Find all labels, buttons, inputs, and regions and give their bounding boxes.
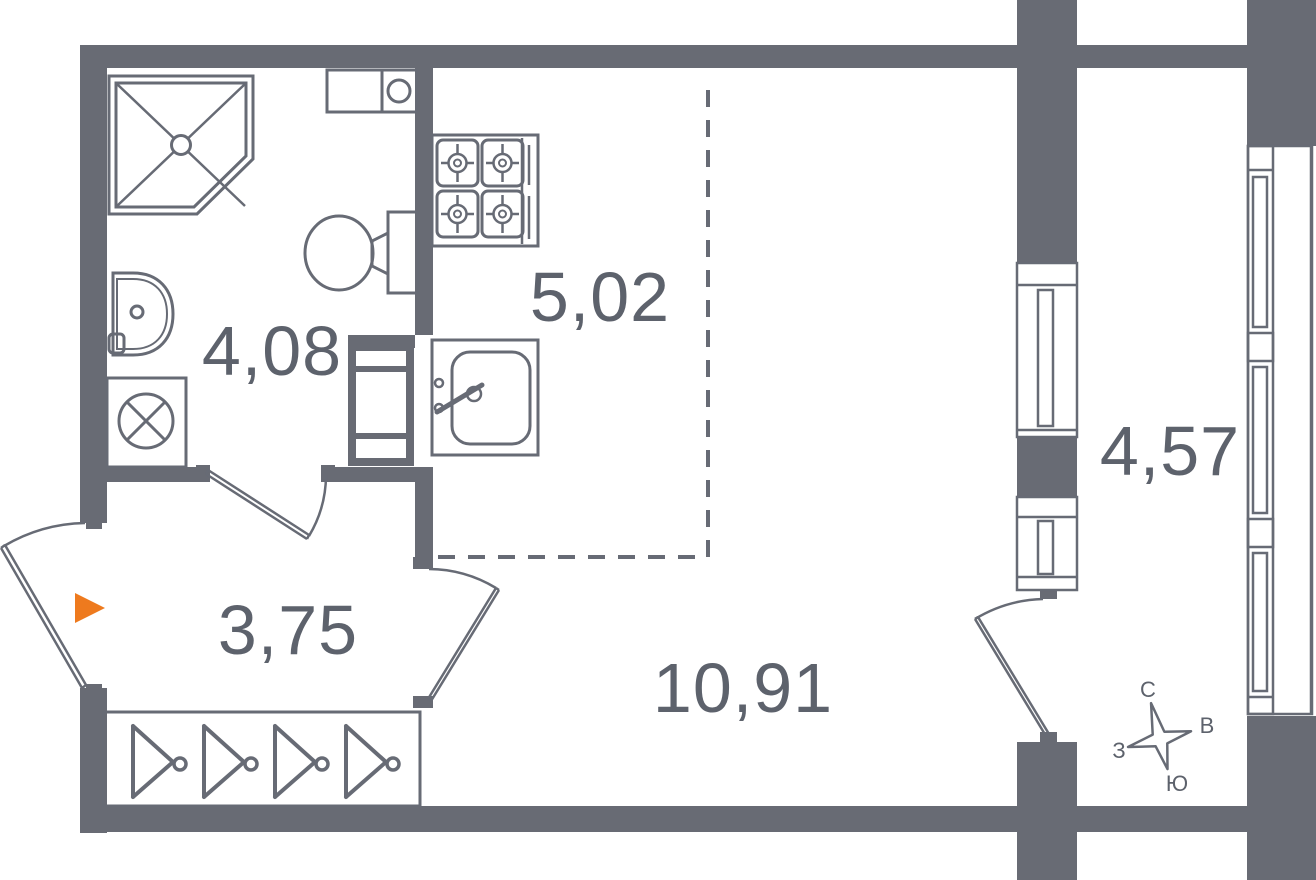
- compass-rose: С В З Ю: [1112, 677, 1214, 796]
- washbasin-icon: [109, 273, 173, 355]
- living-room-area-label: 10,91: [653, 653, 833, 723]
- hallway-area-label: 3,75: [218, 595, 358, 665]
- wall-block-bottom-right: [1247, 716, 1316, 880]
- entrance-arrow-icon: [75, 593, 105, 623]
- room-balcony-window: [1017, 263, 1077, 590]
- jamb-bathroom-left: [196, 465, 210, 482]
- bathroom-area-label: 4,08: [202, 316, 342, 386]
- bathroom-door: [206, 470, 326, 539]
- wall-partition-lower: [415, 467, 433, 560]
- hanger-icon: [346, 726, 399, 797]
- compass-south-label: Ю: [1166, 771, 1188, 796]
- water-heater-icon: [327, 70, 417, 112]
- balcony-area-label: 4,57: [1100, 416, 1240, 486]
- kitchen-sink-icon: [432, 340, 538, 455]
- compass-west-label: З: [1112, 738, 1125, 763]
- hanger-icon: [275, 726, 328, 797]
- hanger-icon: [133, 726, 186, 797]
- jamb-room-top: [413, 557, 433, 569]
- hanger-icon: [204, 726, 257, 797]
- wall-bath-bottom-left: [107, 467, 199, 482]
- wall-bath-bottom-right: [322, 467, 415, 482]
- jamb-entrance-bottom: [86, 684, 102, 698]
- jamb-bathroom-right: [321, 465, 335, 482]
- wardrobe-icon: [103, 712, 420, 806]
- room-door: [428, 569, 499, 701]
- wall-left-upper: [80, 45, 107, 523]
- kitchen-area-label: 5,02: [530, 262, 670, 332]
- jamb-entrance-top: [86, 515, 102, 529]
- balcony-glazing: [1248, 146, 1312, 714]
- floor-plan: С В З Ю 4,08 5,02 3,75 10,91 4,57: [0, 0, 1316, 880]
- washing-machine-icon: [107, 378, 186, 467]
- vent-shaft: [352, 347, 410, 462]
- toilet-icon: [305, 212, 418, 293]
- compass-east-label: В: [1200, 713, 1215, 738]
- balcony-door: [975, 599, 1049, 736]
- wall-balcony-column-bottom: [1017, 742, 1077, 880]
- entrance-door: [1, 523, 86, 688]
- wall-balcony-column-mid: [1017, 437, 1077, 497]
- wall-pier-top-right: [1247, 0, 1316, 146]
- shower-icon: [109, 76, 253, 214]
- gas-stove-icon: [432, 135, 538, 246]
- compass-north-label: С: [1140, 677, 1156, 702]
- wall-balcony-column-top: [1017, 0, 1077, 263]
